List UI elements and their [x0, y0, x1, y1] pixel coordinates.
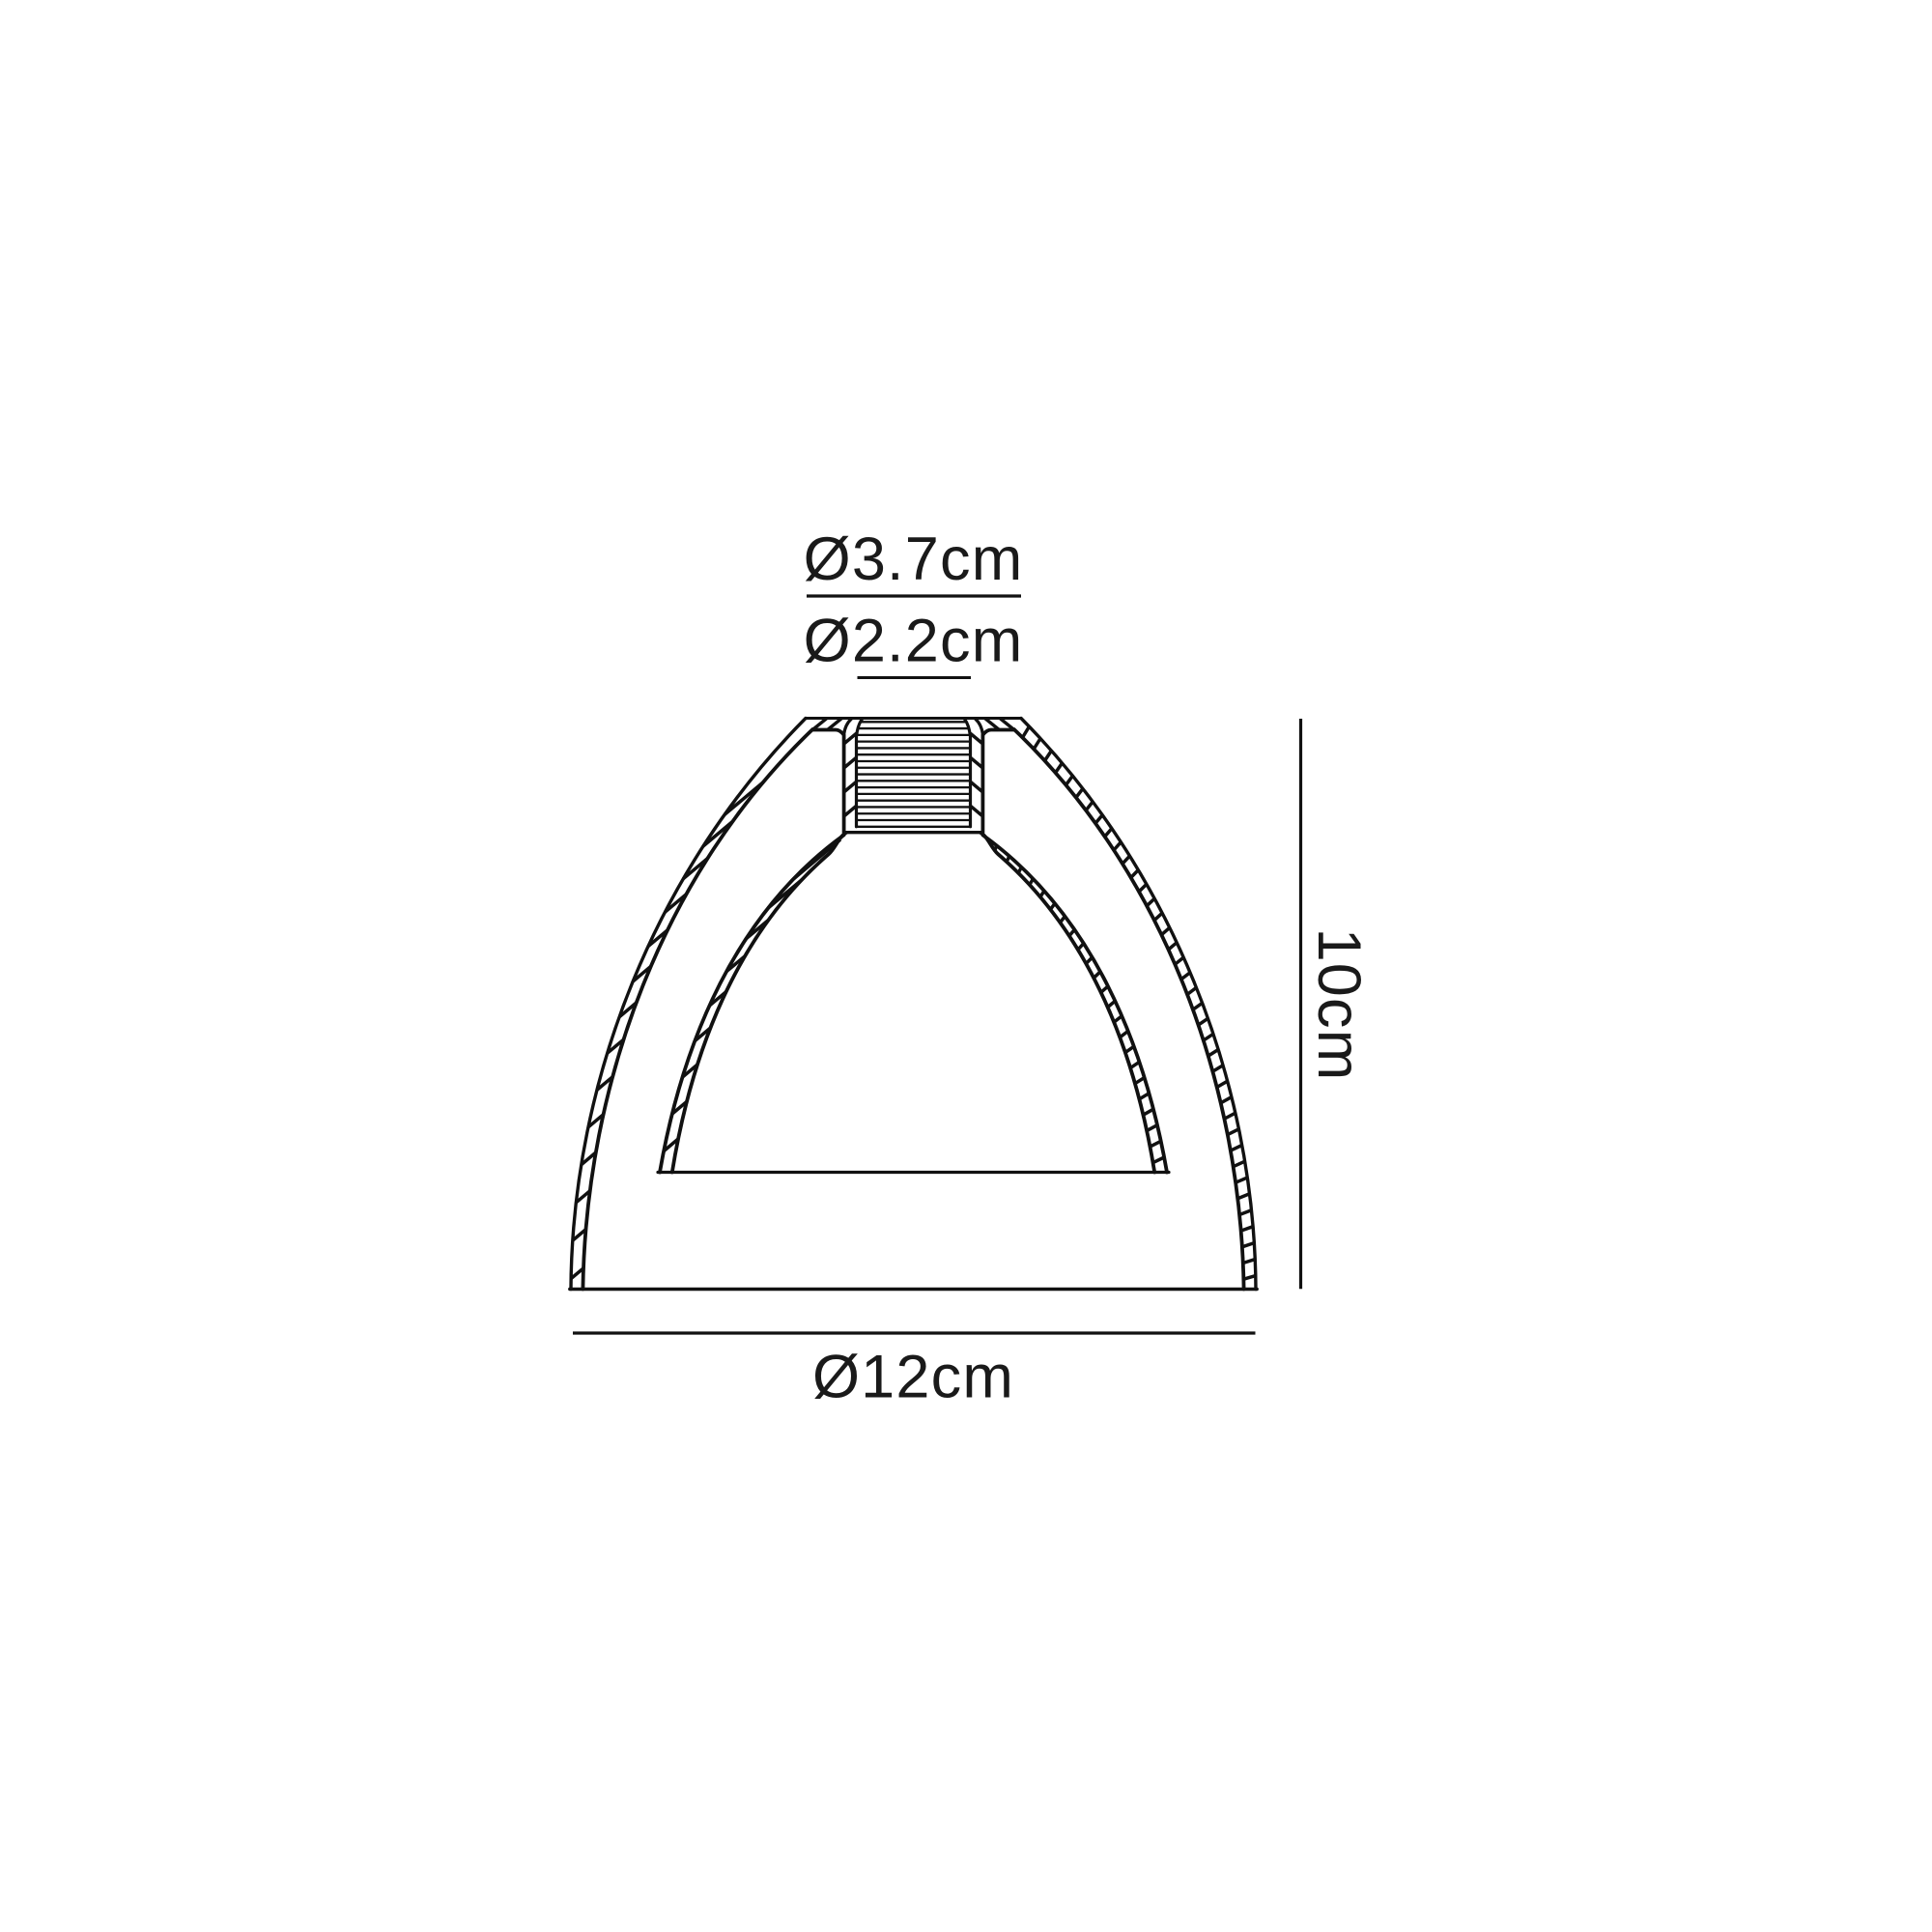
svg-text:10cm: 10cm [1305, 928, 1373, 1082]
svg-text:Ø12cm: Ø12cm [812, 1344, 1014, 1411]
svg-text:Ø2.2cm: Ø2.2cm [804, 608, 1024, 675]
svg-text:Ø3.7cm: Ø3.7cm [804, 526, 1024, 593]
